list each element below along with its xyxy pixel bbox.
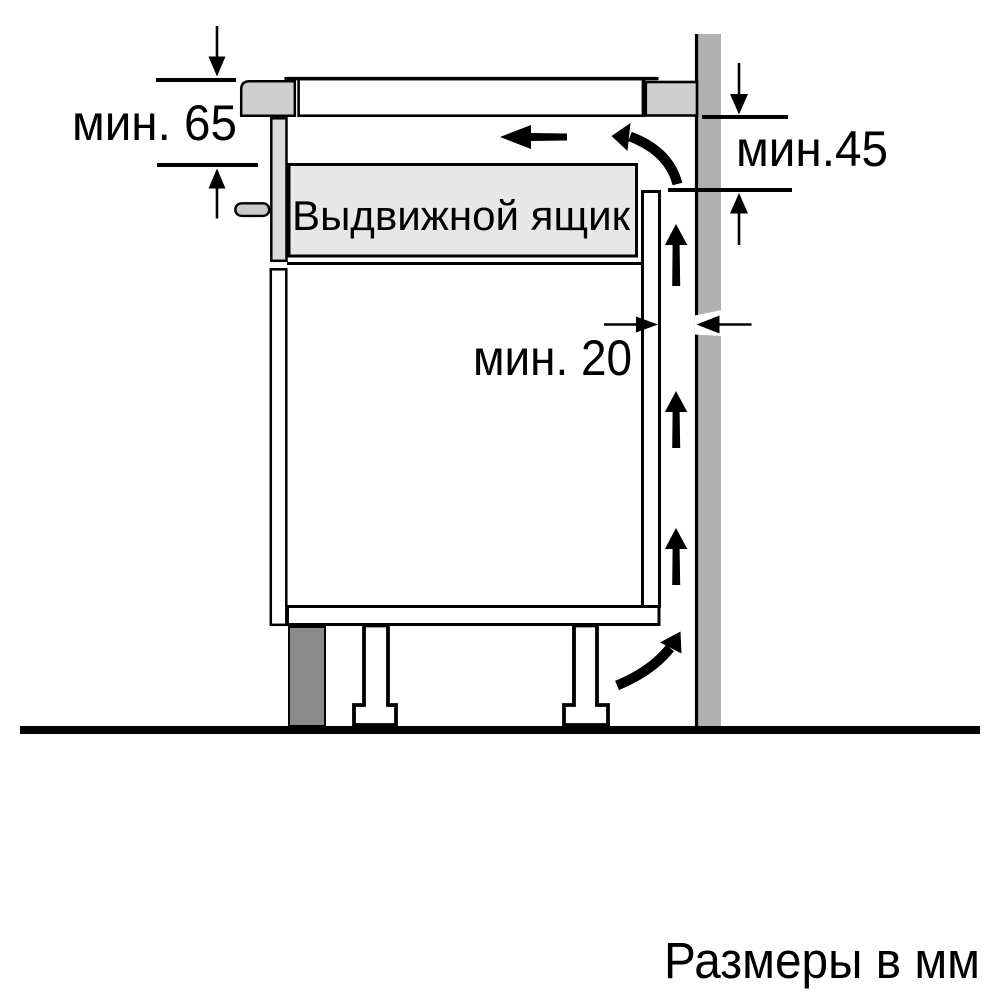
svg-text:мин. 65: мин. 65 [72,95,237,151]
svg-text:мин. 20: мин. 20 [473,330,632,386]
svg-text:Выдвижной ящик: Выдвижной ящик [292,192,631,239]
svg-text:мин.45: мин.45 [736,121,888,177]
svg-text:Размеры в мм: Размеры в мм [664,932,980,989]
